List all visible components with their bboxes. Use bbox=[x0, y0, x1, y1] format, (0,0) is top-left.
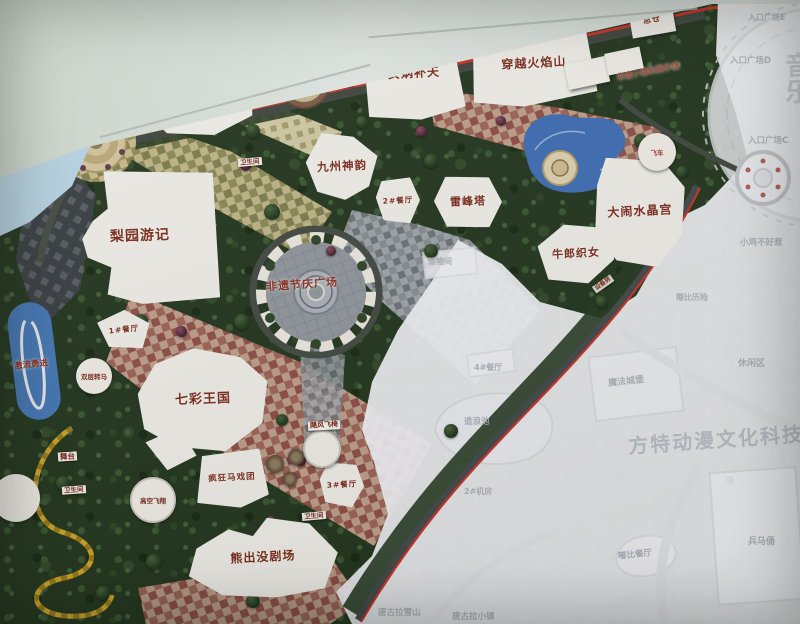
tree bbox=[276, 414, 288, 426]
tree bbox=[96, 586, 110, 600]
watermark-yin: 音乐 bbox=[778, 52, 800, 104]
tree bbox=[676, 166, 688, 178]
red-tree bbox=[326, 246, 336, 256]
faded-label-jifang2: 2#机房 bbox=[464, 486, 492, 497]
circus-structure bbox=[288, 449, 304, 465]
ride-jufeng-feiyi-circle bbox=[303, 430, 341, 468]
park-map-photo: 千古蝶恋 女娲补天 穿越火焰山 总仓 九州神韵 雷峰塔 大闹水晶宫 牛郎织女 梨… bbox=[0, 0, 800, 624]
label-wutai: 舞台 bbox=[58, 451, 78, 462]
faded-label-canting4: 4#餐厅 bbox=[474, 362, 502, 373]
attraction-xiongchumo-juchang: 熊出没剧场 bbox=[186, 514, 340, 602]
faded-label-entrance-d: 入口广场D bbox=[730, 54, 771, 66]
attraction-leifengta: 雷峰塔 bbox=[433, 175, 503, 229]
label-feiyi-plaza: 非遗节庆广场 bbox=[266, 274, 339, 295]
tree bbox=[444, 424, 458, 438]
tree bbox=[234, 314, 250, 330]
faded-label-dubi-canting: 嘟比餐厅 bbox=[617, 546, 652, 561]
attraction-fengkuang-maxituan: 疯狂马戏团 bbox=[195, 448, 270, 510]
circus-structure bbox=[283, 472, 297, 486]
tree bbox=[424, 154, 438, 168]
ride-feiche: 飞车 bbox=[638, 133, 676, 171]
ride-platform-disc bbox=[0, 474, 40, 522]
faded-label-entrance-e: 入口广场E bbox=[748, 12, 785, 23]
faded-label-zaolangchi: 造浪池 bbox=[464, 415, 490, 427]
restaurant-2: 2#餐厅 bbox=[375, 177, 421, 225]
faded-label-tanggula-xiaozhen: 唐古拉小镇 bbox=[452, 610, 495, 622]
restaurant-3: 3#餐厅 bbox=[319, 461, 365, 509]
tree bbox=[246, 124, 260, 138]
faded-label-xiaoji: 小鸡不好惹 bbox=[740, 236, 783, 248]
red-tree bbox=[416, 126, 427, 137]
watermark-park-name: 方特动漫文化科技 bbox=[627, 418, 800, 459]
circus-structure bbox=[266, 455, 284, 473]
red-tree bbox=[496, 116, 506, 126]
tree bbox=[264, 204, 280, 220]
label-restroom: 卫生间 bbox=[62, 485, 86, 495]
attraction-niulang-zhinu: 牛郎织女 bbox=[536, 222, 615, 286]
label-restroom: 卫生间 bbox=[302, 511, 326, 521]
label-restroom: 卫生间 bbox=[238, 157, 262, 167]
tree bbox=[596, 296, 608, 308]
faded-label-xiuxianqu: 休闲区 bbox=[738, 356, 765, 369]
ride-shuangceng-zhuanma: 双层转马 bbox=[76, 358, 112, 394]
faded-label-dubi-lixian: 嘟比历险 bbox=[676, 292, 708, 303]
label-jufeng-feiyi: 飓风飞椅 bbox=[308, 420, 340, 430]
tree bbox=[146, 554, 162, 570]
attraction-liyuan-youji: 梨园游记 bbox=[60, 167, 221, 306]
faded-label-entrance-c: 入口广场C bbox=[748, 134, 788, 146]
faded-label-mofa-chengbao: 魔法城堡 bbox=[607, 372, 644, 389]
tree bbox=[356, 116, 368, 128]
attraction-jiuzhou-shenyun: 九州神韵 bbox=[304, 130, 379, 202]
faded-label-chuwujian: 储物间 bbox=[428, 256, 452, 267]
label-jiliu-yongjin: 激流勇进 bbox=[13, 356, 48, 371]
label-shebeifang: 设备房 bbox=[592, 274, 614, 293]
ride-gaokong-feixiang: 高空飞翔 bbox=[130, 477, 176, 523]
faded-label-bingmayong: 兵马俑 bbox=[748, 534, 775, 547]
faded-label-tanggula-xueshan: 唐古拉雪山 bbox=[378, 606, 421, 618]
red-tree bbox=[176, 326, 187, 337]
